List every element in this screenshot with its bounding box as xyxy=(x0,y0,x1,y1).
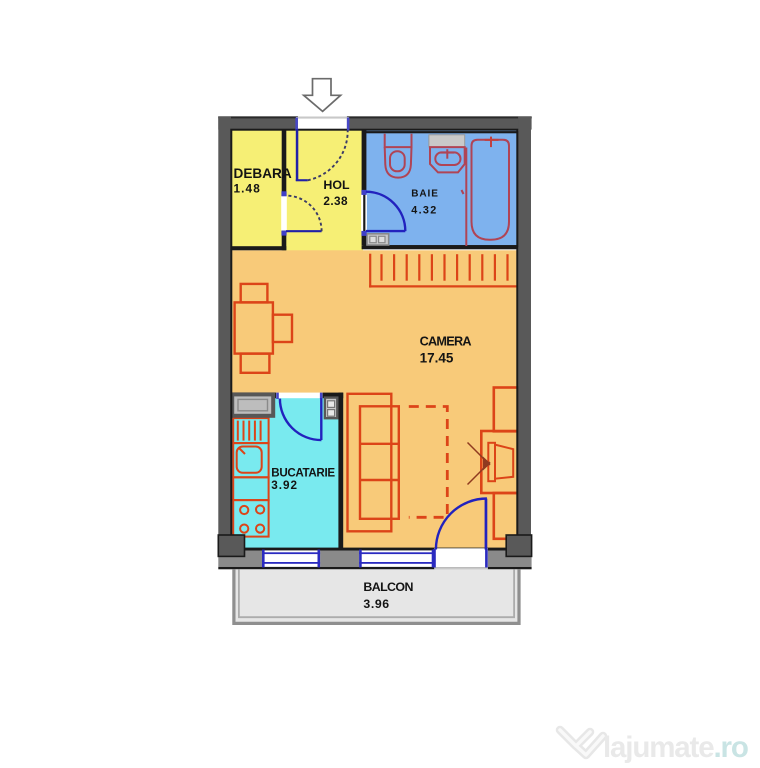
svg-text:3.96: 3.96 xyxy=(363,597,389,611)
svg-text:BAIE: BAIE xyxy=(411,189,439,200)
svg-text:1.48: 1.48 xyxy=(234,181,261,195)
svg-text:2.38: 2.38 xyxy=(323,194,348,208)
svg-text:HOL: HOL xyxy=(323,178,350,192)
svg-text:17.45: 17.45 xyxy=(420,351,454,366)
svg-text:4.32: 4.32 xyxy=(411,205,437,217)
svg-text:3.92: 3.92 xyxy=(271,479,298,492)
svg-text:lajumate.ro: lajumate.ro xyxy=(603,731,748,764)
svg-text:BALCON: BALCON xyxy=(363,580,413,594)
svg-text:BUCATARIE: BUCATARIE xyxy=(271,466,335,479)
svg-text:DEBARA: DEBARA xyxy=(234,166,292,181)
svg-text:CAMERA: CAMERA xyxy=(420,335,472,349)
